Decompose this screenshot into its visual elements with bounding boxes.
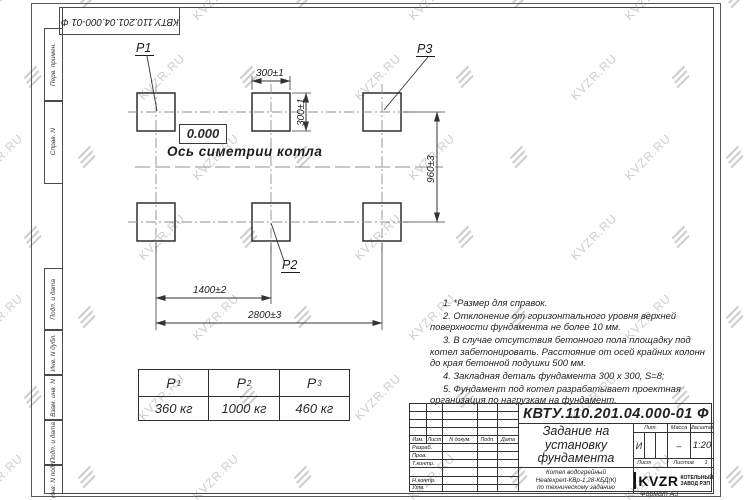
stamp-row-label: Разраб. — [410, 444, 443, 452]
lit-cell-3 — [656, 433, 668, 459]
subject-line: по техническому заданию — [537, 484, 615, 492]
stamp-row-razrab: Разраб. — [410, 444, 519, 452]
symmetry-axis-label: Ось симетрии котла — [167, 144, 322, 159]
company-name: КОТЕЛЬНЫЙ ЗАВОД РЭП — [680, 475, 713, 487]
doc-number: КВТУ.110.201.04.000-01 Ф — [519, 404, 713, 424]
company-line: КОТЕЛЬНЫЙ — [680, 475, 713, 481]
load-sub: 1 — [177, 379, 181, 388]
subject-line: Котел водогрейный — [546, 469, 606, 477]
loads-value: 460 кг — [280, 397, 349, 420]
loads-col-p3: P3 460 кг — [280, 370, 349, 420]
scale-header: Масштаб — [691, 424, 713, 433]
stamp-row-utv: Утв. — [410, 485, 519, 492]
stamp-header-row: Изм. Лист N докум. Подп. Дата — [410, 436, 519, 444]
mass-header: Масса — [668, 424, 691, 433]
revision-grid — [410, 404, 519, 436]
title-block: Изм. Лист N докум. Подп. Дата Разраб. Пр… — [409, 403, 712, 492]
lit-cell-2 — [645, 433, 656, 459]
drawing-title: Задание на установку фундамента — [519, 424, 634, 468]
loads-header: P1 — [139, 370, 208, 397]
pad-label-p2: P2 — [281, 258, 300, 273]
drawing-sheet: KVZR.RUKVZR.RUKVZR.RUKVZR.RUKVZR.RUKVZR.… — [0, 0, 750, 500]
stamp-col-data: Дата — [498, 436, 519, 444]
stamp-row-label — [410, 468, 443, 477]
loads-table: P1 360 кг P2 1000 кг P3 460 кг — [138, 369, 350, 421]
load-symbol: P — [166, 375, 175, 391]
stamp-col-izm: Изм. — [410, 436, 427, 444]
dim-pad-width: 300±1 — [256, 68, 284, 79]
sheets-value: 1 — [705, 460, 708, 466]
elevation-mark: 0.000 — [179, 124, 227, 144]
leader-p2 — [271, 223, 284, 261]
lit-header: Лит. — [634, 424, 668, 433]
dim-total-spacing: 2800±3 — [248, 310, 281, 321]
mass-value: – — [668, 433, 691, 459]
company-line: ЗАВОД РЭП — [680, 481, 713, 487]
title-line: Задание на — [543, 425, 610, 439]
leader-p3 — [384, 57, 428, 110]
note-item: 1. *Размер для справок. — [430, 297, 713, 309]
sheets-cell: Листов 1 — [668, 459, 713, 468]
sheet-label: Лист — [634, 459, 668, 468]
stamp-row-nkontr: Н.контр. — [410, 477, 519, 485]
kvzr-logo-text: KVZR — [638, 473, 678, 489]
leader-p1 — [147, 56, 157, 111]
dim-row-spacing: 960±3 — [426, 155, 437, 183]
stamp-row-empty — [410, 468, 519, 477]
pad-label-p1: P1 — [135, 41, 154, 56]
stamp-col-podp: Подп. — [478, 436, 498, 444]
stamp-row-tkontr: Т.контр. — [410, 460, 519, 468]
load-symbol: P — [307, 375, 316, 391]
dim-pad-height: 300±1 — [296, 98, 307, 126]
scale-value: 1:20 — [691, 433, 713, 459]
drawing-subject: Котел водогрейный Heatexpert-КВр-1,28-КБ… — [519, 468, 634, 493]
lit-value: И — [634, 433, 645, 459]
loads-col-p1: P1 360 кг — [139, 370, 209, 420]
format-label: Формат А3 — [640, 491, 678, 498]
stamp-row-label: Утв. — [410, 485, 443, 492]
stamp-row-label: Пров. — [410, 452, 443, 460]
note-item: 3. В случае отсутствия бетонного пола пл… — [430, 334, 713, 369]
loads-header: P3 — [280, 370, 349, 397]
dim-mid-spacing: 1400±2 — [193, 285, 226, 296]
stamp-col-ndoc: N докум. — [443, 436, 478, 444]
title-line: фундамента — [538, 452, 615, 466]
kvzr-logo-icon — [634, 472, 636, 489]
stamp-row-label: Т.контр. — [410, 460, 443, 468]
loads-header: P2 — [209, 370, 278, 397]
load-symbol: P — [237, 375, 246, 391]
loads-value: 1000 кг — [209, 397, 278, 420]
sheets-label: Листов — [673, 460, 693, 466]
company-logo-cell: KVZR КОТЕЛЬНЫЙ ЗАВОД РЭП — [634, 468, 713, 493]
pad-label-p3: P3 — [416, 42, 435, 57]
note-item: 4. Закладная деталь фундамента 300 х 300… — [430, 370, 713, 382]
stamp-row-label: Н.контр. — [410, 477, 443, 485]
load-sub: 2 — [247, 379, 251, 388]
stamp-row-prov: Пров. — [410, 452, 519, 460]
load-sub: 3 — [317, 379, 321, 388]
note-item: 2. Отклонение от горизонтального уровня … — [430, 310, 713, 333]
title-line: установку — [545, 439, 607, 453]
notes-block: 1. *Размер для справок. 2. Отклонение от… — [430, 297, 713, 407]
loads-value: 360 кг — [139, 397, 208, 420]
loads-col-p2: P2 1000 кг — [209, 370, 279, 420]
stamp-col-list: Лист — [427, 436, 443, 444]
